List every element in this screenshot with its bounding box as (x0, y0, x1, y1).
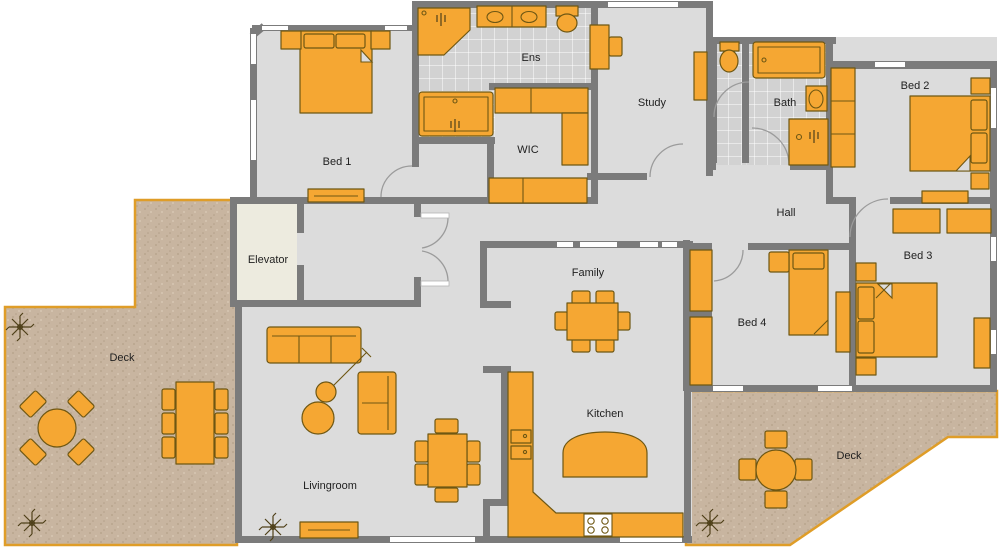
family-chair-bottom-left (572, 339, 590, 352)
label-deck-left: Deck (109, 352, 135, 364)
elevator-floor (237, 204, 297, 300)
livingroom-sofa-3seat (267, 327, 361, 363)
bed1-nightstand-left (281, 31, 301, 49)
bath-shower (789, 119, 828, 165)
kitchen-sink-unit-1 (511, 430, 531, 443)
bed3-pillow-top (858, 287, 874, 319)
label-bed2: Bed 2 (901, 80, 930, 92)
bed2-dresser (922, 191, 968, 203)
bed2-nightstand-bottom (971, 173, 989, 189)
bed3-pillow-bottom (858, 321, 874, 353)
family-chair-right (617, 312, 630, 330)
bed3-nightstand-top (856, 263, 876, 281)
family-chair-top-left (572, 291, 590, 304)
living-chair-right-1 (467, 441, 480, 462)
living-chair-right-2 (467, 464, 480, 485)
bed2-wardrobe (831, 68, 855, 167)
bed4-chair (769, 252, 789, 272)
bed4-pillow (793, 253, 824, 269)
kitchen-cooktop (584, 514, 612, 536)
deck-left-long-chair-r3 (215, 437, 228, 458)
label-bed4: Bed 4 (738, 317, 767, 329)
deck-left-long-chair-l3 (162, 437, 175, 458)
study-chair (609, 37, 622, 56)
bed1-pillow-right (336, 34, 365, 48)
deck-right-round-table (756, 450, 796, 490)
bed4-desk (836, 292, 850, 352)
label-ens: Ens (522, 52, 541, 64)
label-bed3: Bed 3 (904, 250, 933, 262)
living-dining-table (428, 434, 467, 487)
living-chair-bottom (435, 488, 458, 502)
family-table (567, 303, 618, 340)
wic-wardrobe-bottom (489, 178, 587, 203)
deck-left-long-table (176, 382, 214, 464)
entry-door-leaf-bottom (421, 281, 449, 286)
wic-wardrobe-right (562, 113, 588, 165)
deck-left-area (5, 200, 237, 545)
study-cabinet (694, 52, 707, 100)
label-bed1: Bed 1 (323, 156, 352, 168)
bed2-nightstand-top (971, 78, 990, 94)
deck-left-round-table (38, 409, 76, 447)
label-family: Family (572, 267, 605, 279)
wc-toilet-bowl (720, 50, 738, 72)
entry-door-leaf-top (421, 213, 449, 218)
label-hall: Hall (777, 207, 796, 219)
label-kitchen: Kitchen (587, 408, 624, 420)
label-livingroom: Livingroom (303, 480, 357, 492)
family-chair-left (555, 312, 568, 330)
bed2-pillow-top (971, 100, 987, 130)
label-study: Study (638, 97, 667, 109)
family-chair-top-right (596, 291, 614, 304)
deck-left-long-chair-r1 (215, 389, 228, 410)
deck-left-long-chair-l2 (162, 413, 175, 434)
study-desk (590, 25, 609, 69)
round-pouf (302, 402, 334, 434)
bed2-pillow-bottom (971, 133, 987, 163)
bed3-nightstand-bottom (856, 358, 876, 375)
deck-right-chair-bottom (765, 491, 787, 508)
bed3-wardrobe-right (947, 209, 991, 233)
floor-lamp-head (316, 382, 336, 402)
label-wic: WIC (517, 144, 538, 156)
deck-right-chair-right (795, 459, 812, 480)
label-elevator: Elevator (248, 254, 289, 266)
deck-right-chair-left (739, 459, 756, 480)
kitchen-sink-unit-2 (511, 446, 531, 459)
label-bath: Bath (774, 97, 797, 109)
deck-left-long-chair-r2 (215, 413, 228, 434)
bed4-wardrobe-bottom (690, 317, 712, 385)
deck-right-area (686, 391, 997, 545)
label-deck-right: Deck (836, 450, 862, 462)
kitchen-island (563, 432, 647, 477)
bed3-wardrobe-left (893, 209, 940, 233)
living-chair-top (435, 419, 458, 433)
ens-bathtub (419, 92, 493, 136)
deck-left-long-chair-l1 (162, 389, 175, 410)
family-chair-bottom-right (596, 339, 614, 352)
ens-toilet-bowl (557, 14, 577, 32)
bed1-nightstand-right (371, 31, 390, 49)
bed3-cabinet (974, 318, 990, 368)
wc-fixtures (720, 42, 739, 72)
living-chair-left-2 (415, 464, 428, 485)
bed1-pillow-left (304, 34, 334, 48)
floor-plan: Bed 1 Ens WIC Study Bath Bed 2 Hall Elev… (0, 0, 1000, 547)
floor-plan-page: Bed 1 Ens WIC Study Bath Bed 2 Hall Elev… (0, 0, 1000, 547)
deck-right-chair-top (765, 431, 787, 448)
wic-wardrobe-top (495, 88, 588, 113)
living-chair-left-1 (415, 441, 428, 462)
bed4-wardrobe-top (690, 250, 712, 311)
